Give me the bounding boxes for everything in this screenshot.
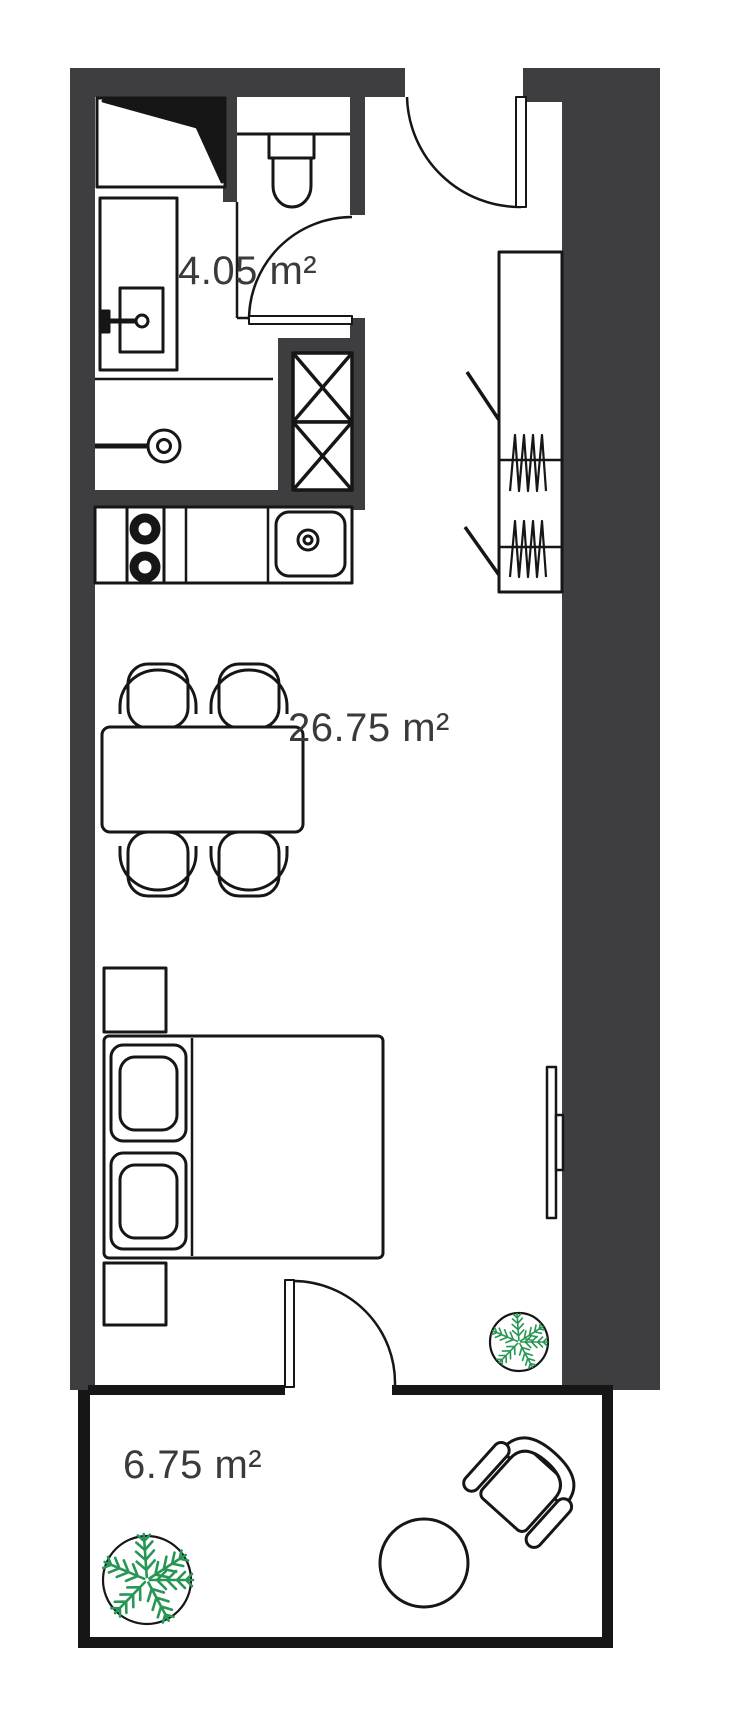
dining-set bbox=[102, 664, 303, 896]
radiator-icon bbox=[547, 1067, 563, 1218]
kitchen-counter bbox=[95, 507, 352, 583]
wall-balcony-left bbox=[78, 1390, 90, 1648]
coffee-table-icon bbox=[380, 1519, 468, 1607]
pillow-icon bbox=[111, 1045, 186, 1141]
door-swing-icon bbox=[294, 1281, 395, 1385]
floor-drain-icon bbox=[95, 430, 180, 462]
toilet-tank bbox=[269, 134, 314, 158]
shower-icon bbox=[97, 98, 225, 187]
wall-shaft-left bbox=[278, 338, 293, 510]
sink-drain-inner bbox=[304, 536, 312, 544]
wall-balcony-bottom bbox=[78, 1637, 613, 1648]
wall-stub-bath-right-upper bbox=[350, 68, 365, 215]
toilet-bowl bbox=[273, 158, 311, 207]
door-leaf bbox=[249, 316, 352, 324]
wardrobe-leader-1 bbox=[467, 372, 499, 420]
vanity-sink-icon bbox=[100, 198, 177, 370]
nightstand-icon bbox=[104, 968, 166, 1032]
dining-chair-icon bbox=[211, 664, 287, 728]
door-leaf bbox=[285, 1280, 294, 1387]
floor-plan-drawing: 4.05 m² 26.75 m² 6.75 m² bbox=[0, 0, 741, 1728]
dining-chair-icon bbox=[120, 664, 196, 728]
dining-table-icon bbox=[102, 727, 303, 832]
pillow-icon bbox=[111, 1153, 186, 1249]
living-area-label: 26.75 m² bbox=[288, 706, 450, 750]
ventilation-shaft-icon bbox=[293, 353, 352, 490]
floor-plan-canvas: 4.05 m² 26.75 m² 6.75 m² bbox=[0, 0, 741, 1728]
drain-inner bbox=[158, 440, 171, 453]
wall-room-bottom-left bbox=[88, 1385, 285, 1395]
faucet-head bbox=[136, 315, 148, 327]
wardrobe-leader-2 bbox=[465, 527, 499, 575]
bathroom-area-label: 4.05 m² bbox=[178, 249, 317, 293]
kitchen-sink-icon bbox=[276, 512, 345, 576]
burner-bottom bbox=[134, 556, 156, 578]
dining-chair-icon bbox=[120, 832, 196, 896]
wall-room-bottom-right bbox=[392, 1385, 613, 1395]
toilet-icon bbox=[269, 134, 314, 207]
door-leaf bbox=[516, 97, 526, 207]
sleeping-area bbox=[104, 968, 383, 1325]
wardrobe-icon bbox=[465, 252, 562, 592]
nightstand-icon bbox=[104, 1263, 166, 1325]
stove-icon bbox=[127, 507, 164, 583]
balcony-area-label: 6.75 m² bbox=[123, 1443, 262, 1487]
wall-right bbox=[562, 68, 660, 1390]
dining-chair-icon bbox=[211, 832, 287, 896]
wall-balcony-right bbox=[602, 1390, 613, 1648]
burner-top bbox=[134, 518, 156, 540]
faucet-base bbox=[100, 311, 109, 332]
door-swing-icon bbox=[407, 97, 521, 207]
entry-door bbox=[407, 97, 526, 207]
balcony-door bbox=[285, 1280, 395, 1387]
wall-left bbox=[70, 68, 95, 1390]
armchair-icon bbox=[460, 1420, 592, 1551]
